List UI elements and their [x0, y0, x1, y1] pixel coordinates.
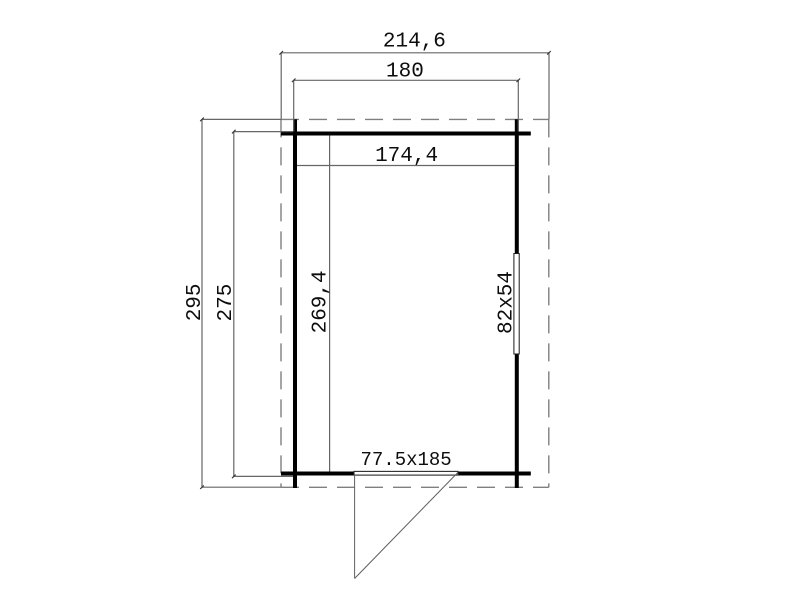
svg-text:174,4: 174,4 [375, 145, 438, 168]
svg-text:275: 275 [215, 284, 238, 322]
svg-text:180: 180 [386, 61, 424, 84]
svg-text:77.5x185: 77.5x185 [360, 449, 451, 471]
svg-text:269,4: 269,4 [310, 270, 333, 333]
svg-text:295: 295 [184, 283, 207, 321]
svg-text:214,6: 214,6 [383, 30, 446, 53]
svg-text:82x54: 82x54 [495, 271, 518, 334]
